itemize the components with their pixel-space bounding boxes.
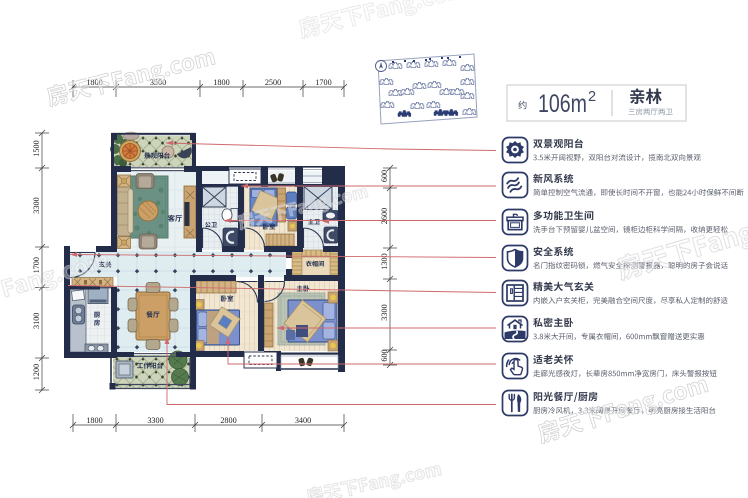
svg-text:2800: 2800 [220, 416, 236, 425]
svg-text:1500: 1500 [32, 140, 41, 156]
svg-text:1700: 1700 [315, 78, 331, 87]
svg-text:3300: 3300 [380, 304, 389, 320]
svg-text:600: 600 [380, 349, 389, 361]
svg-text:106m: 106m [538, 90, 587, 118]
svg-text:1800: 1800 [86, 416, 102, 425]
svg-text:3400: 3400 [295, 416, 311, 425]
svg-text:1700: 1700 [32, 257, 41, 273]
svg-text:3100: 3100 [32, 313, 41, 329]
svg-text:600: 600 [380, 170, 389, 182]
svg-text:3300: 3300 [32, 197, 41, 213]
svg-text:1200: 1200 [32, 364, 41, 380]
svg-text:1300: 1300 [380, 253, 389, 269]
svg-text:2600: 2600 [380, 208, 389, 224]
svg-text:2: 2 [588, 89, 596, 105]
svg-text:3300: 3300 [147, 416, 163, 425]
svg-text:1800: 1800 [213, 78, 229, 87]
svg-text:2500: 2500 [265, 78, 281, 87]
